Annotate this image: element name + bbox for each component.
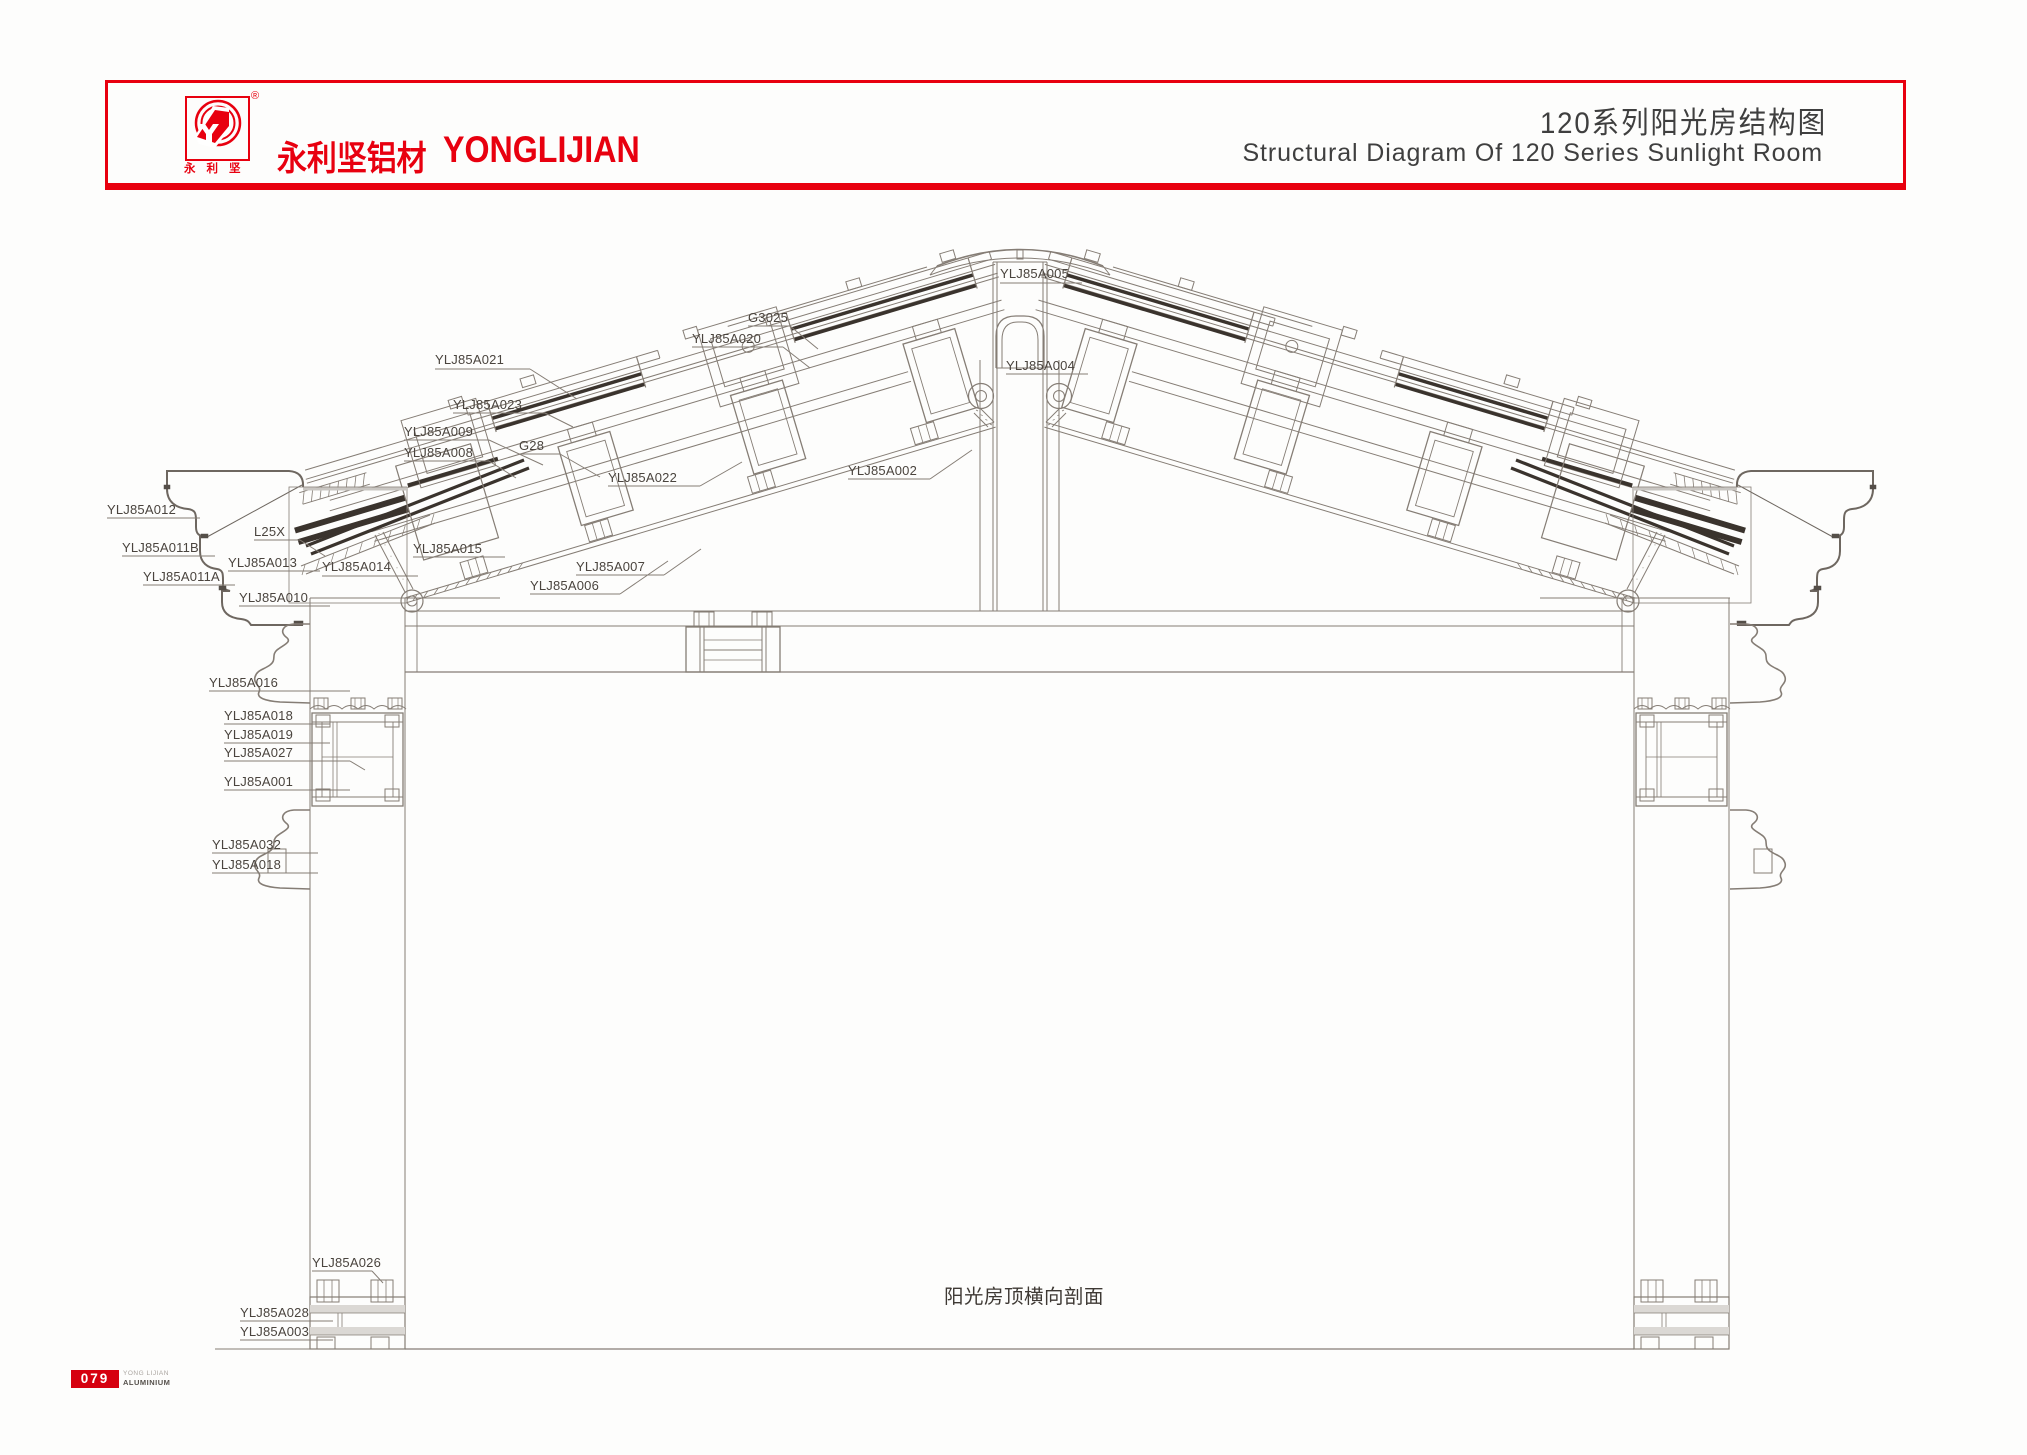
svg-text:YLJ85A007: YLJ85A007 [576, 559, 645, 574]
svg-text:YLJ85A011B: YLJ85A011B [122, 540, 199, 555]
svg-text:G28: G28 [519, 438, 544, 453]
svg-text:YLJ85A014: YLJ85A014 [322, 559, 391, 574]
svg-text:L25X: L25X [254, 524, 285, 539]
svg-text:YLJ85A015: YLJ85A015 [413, 541, 482, 556]
svg-text:阳光房顶横向剖面: 阳光房顶横向剖面 [944, 1286, 1104, 1308]
svg-text:YLJ85A026: YLJ85A026 [312, 1255, 381, 1270]
svg-text:YLJ85A019: YLJ85A019 [224, 727, 293, 742]
svg-text:YLJ85A032: YLJ85A032 [212, 837, 281, 852]
svg-text:YLJ85A018: YLJ85A018 [212, 857, 281, 872]
svg-text:YLJ85A008: YLJ85A008 [404, 445, 473, 460]
svg-text:YLJ85A001: YLJ85A001 [224, 774, 293, 789]
svg-text:YLJ85A012: YLJ85A012 [107, 502, 176, 517]
svg-text:YLJ85A003: YLJ85A003 [240, 1324, 309, 1339]
svg-text:YLJ85A004: YLJ85A004 [1006, 358, 1075, 373]
svg-text:YLJ85A020: YLJ85A020 [692, 331, 761, 346]
svg-text:YLJ85A010: YLJ85A010 [239, 590, 308, 605]
svg-text:YLJ85A022: YLJ85A022 [608, 470, 677, 485]
svg-text:YLJ85A009: YLJ85A009 [404, 424, 473, 439]
svg-text:YLJ85A002: YLJ85A002 [848, 463, 917, 478]
svg-text:YLJ85A005: YLJ85A005 [1000, 266, 1069, 281]
svg-text:G3025: G3025 [748, 310, 788, 325]
svg-text:YLJ85A013: YLJ85A013 [228, 555, 297, 570]
svg-text:YLJ85A016: YLJ85A016 [209, 675, 278, 690]
svg-text:YLJ85A006: YLJ85A006 [530, 578, 599, 593]
svg-text:YLJ85A018: YLJ85A018 [224, 708, 293, 723]
svg-text:YLJ85A011A: YLJ85A011A [143, 569, 220, 584]
svg-text:YLJ85A027: YLJ85A027 [224, 745, 293, 760]
svg-text:YLJ85A028: YLJ85A028 [240, 1305, 309, 1320]
svg-text:YLJ85A021: YLJ85A021 [435, 352, 504, 367]
svg-text:YLJ85A023: YLJ85A023 [453, 397, 522, 412]
